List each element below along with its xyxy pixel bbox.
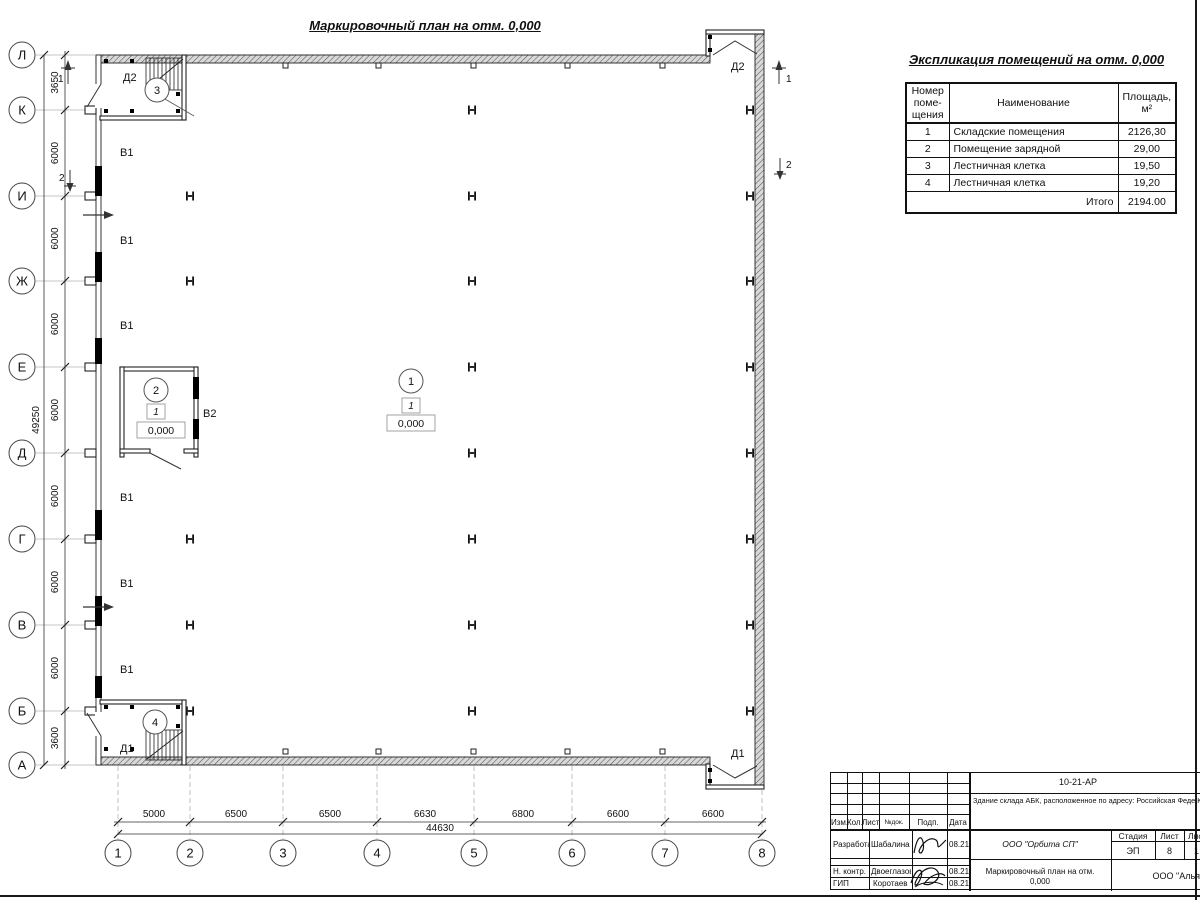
axis-label: 3 <box>279 846 286 861</box>
pilasters <box>85 106 96 715</box>
tb-date: 08.21 <box>949 867 969 876</box>
dim-total: 44630 <box>426 823 454 834</box>
signature-icon <box>911 831 947 857</box>
tb-role: ГИП <box>833 879 869 888</box>
drawing-sheet: Маркировочный план на отм. 0,000 Эксплик… <box>0 0 1200 900</box>
door-swing-icon <box>713 41 757 55</box>
stair-flight-icon <box>146 730 183 760</box>
stairwell-bottom-left: Д1 4 <box>87 700 186 765</box>
tb-col-kol: Кол. <box>847 818 862 827</box>
axis-label: Л <box>18 48 27 63</box>
tb-doc-number: 10-21-АР <box>1059 777 1139 787</box>
dim-value: 6500 <box>319 809 342 820</box>
elevation-value: 0,000 <box>398 418 424 430</box>
steel-column-icon <box>468 621 476 630</box>
tb-sheet-value: 8 <box>1155 846 1184 856</box>
window-label: В1 <box>120 235 133 247</box>
left-wall <box>96 55 101 765</box>
door-swing-icon <box>150 453 181 469</box>
top-wall <box>96 55 710 63</box>
steel-column-icon <box>746 106 754 115</box>
tb-role: Разработал <box>833 840 869 849</box>
bottom-wall <box>96 757 710 765</box>
tb-sheets-label: Листов <box>1188 831 1200 841</box>
dim-value: 6000 <box>50 484 61 507</box>
axis-label: 2 <box>186 846 193 861</box>
floor-type: 1 <box>153 407 159 418</box>
tb-description: Здание склада АБК, расположенное по адре… <box>973 796 1200 829</box>
tb-drawing-title: Маркировочный план на отм. 0,000 <box>969 867 1111 887</box>
tb-date: 08.21 <box>949 879 969 888</box>
dim-value: 6000 <box>50 312 61 335</box>
marker-leader <box>165 99 194 116</box>
steel-column-icon <box>186 192 194 201</box>
dim-value: 5000 <box>143 809 166 820</box>
steel-column-icon <box>746 277 754 286</box>
tb-name: Двоеглазов <box>871 867 911 876</box>
door-label: Д1 <box>120 743 134 755</box>
dim-value: 6000 <box>50 141 61 164</box>
axis-label: Д <box>18 446 27 461</box>
signature-icon <box>907 861 947 889</box>
steel-column-icon <box>468 192 476 201</box>
dim-value: 6600 <box>702 809 725 820</box>
bottom-dimension-chain: 5000 6500 6500 6630 6800 6600 6600 44630 <box>114 809 766 838</box>
steel-column-icon <box>746 192 754 201</box>
dim-value: 3600 <box>50 726 61 749</box>
axis-label: 7 <box>661 846 668 861</box>
hall-marker: 1 1 0,000 <box>387 369 435 431</box>
window-label: В2 <box>203 408 216 420</box>
steel-column-icon <box>746 535 754 544</box>
steel-column-icon <box>186 535 194 544</box>
steel-column-icon <box>746 449 754 458</box>
dim-value: 6600 <box>607 809 630 820</box>
steel-column-icon <box>746 707 754 716</box>
dim-value: 6800 <box>512 809 535 820</box>
section-marks: 1 1 2 2 <box>58 60 792 192</box>
window-label: В1 <box>120 147 133 159</box>
axis-label: Б <box>18 704 27 719</box>
tb-col-izm: Изм. <box>831 818 847 827</box>
tb-col-ndoc: №док. <box>879 818 909 826</box>
section-arrow-icon <box>64 170 76 192</box>
tb-sheet-label: Лист <box>1155 831 1184 841</box>
steel-column-icon <box>468 535 476 544</box>
floor-plan-drawing: 3650 6000 6000 6000 6000 6000 6000 6000 … <box>0 0 1200 900</box>
steel-column-icon <box>186 621 194 630</box>
col-axis-bubbles: 1 2 3 4 5 6 7 8 <box>105 840 775 866</box>
room-marker: 1 <box>408 376 414 388</box>
tb-sheets-value: 1 <box>1194 846 1200 856</box>
axis-label: Ж <box>16 274 28 289</box>
tb-bottom-company: ООО "Альянс <box>1111 871 1200 881</box>
floor-type: 1 <box>408 401 414 412</box>
door-swing-icon <box>713 765 757 778</box>
tb-col-list: Лист <box>862 818 879 827</box>
right-wall <box>755 30 764 789</box>
steel-column-icon <box>468 106 476 115</box>
steel-column-icon <box>468 707 476 716</box>
door-label: Д1 <box>731 748 745 760</box>
section-arrow-icon <box>772 60 786 84</box>
tb-stage-value: ЭП <box>1111 846 1155 856</box>
elevation-value: 0,000 <box>148 425 174 437</box>
room-marker: 3 <box>154 85 160 97</box>
axis-label: 4 <box>373 846 380 861</box>
dim-value: 6000 <box>50 656 61 679</box>
axis-label: 6 <box>568 846 575 861</box>
axis-label: В <box>18 618 27 633</box>
tb-role: Н. контр. <box>833 867 869 876</box>
steel-column-icon <box>746 363 754 372</box>
left-dimension-chain: 3650 6000 6000 6000 6000 6000 6000 6000 … <box>31 51 69 769</box>
axis-label: 5 <box>470 846 477 861</box>
dim-value: 6500 <box>225 809 248 820</box>
door-label: Д2 <box>123 72 137 84</box>
room-marker: 4 <box>152 717 158 729</box>
section-label: 1 <box>58 74 64 85</box>
tb-name: Шабалина <box>871 840 911 849</box>
dim-total: 49250 <box>31 406 42 434</box>
column-grid <box>186 106 754 716</box>
steel-column-icon <box>186 277 194 286</box>
window-label: В1 <box>120 492 133 504</box>
window-label: В1 <box>120 578 133 590</box>
tb-col-data: Дата <box>947 818 969 827</box>
section-label: 2 <box>59 173 65 184</box>
room-marker: 2 <box>153 385 159 397</box>
section-label: 2 <box>786 160 792 171</box>
steel-column-icon <box>746 621 754 630</box>
dim-value: 6000 <box>50 570 61 593</box>
building-walls <box>85 30 764 789</box>
axis-label: А <box>18 758 27 773</box>
dim-value: 6000 <box>50 398 61 421</box>
title-block: Изм. Кол. Лист №док. Подп. Дата Разработ… <box>830 772 1200 890</box>
door-label: Д2 <box>731 61 745 73</box>
axis-label: 1 <box>114 846 121 861</box>
tb-stage-label: Стадия <box>1111 831 1155 841</box>
tb-date: 08.21 <box>949 840 969 849</box>
axis-label: Г <box>18 532 25 547</box>
section-label: 1 <box>786 74 792 85</box>
steel-column-icon <box>468 277 476 286</box>
dim-value: 6000 <box>50 227 61 250</box>
steel-column-icon <box>468 449 476 458</box>
dim-value: 6630 <box>414 809 437 820</box>
section-arrow-icon <box>774 158 786 180</box>
axis-label: И <box>17 189 26 204</box>
tb-company: ООО "Орбита СП" <box>969 839 1111 849</box>
tb-col-podp: Подп. <box>909 818 947 827</box>
wall-column-plates <box>283 63 665 754</box>
window-label: В1 <box>120 664 133 676</box>
steel-column-icon <box>186 707 194 716</box>
steel-column-icon <box>468 363 476 372</box>
axis-label: Е <box>18 360 27 375</box>
stair-columns <box>104 705 180 751</box>
window-label: В1 <box>120 320 133 332</box>
charging-room: В2 2 1 0,000 <box>120 367 216 469</box>
axis-label: 8 <box>758 846 765 861</box>
stairwell-top-left: Д2 3 <box>87 55 194 120</box>
axis-label: К <box>18 103 26 118</box>
